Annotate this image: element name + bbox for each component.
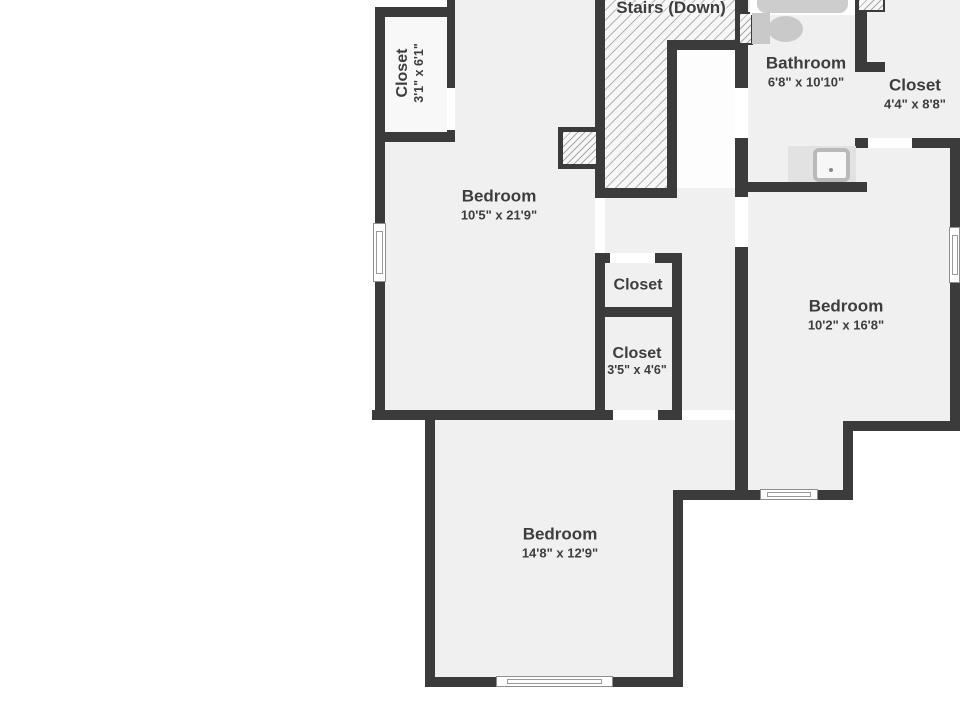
wall	[595, 307, 682, 317]
room-label-bathroom: Bathroom 6'8" x 10'10"	[766, 55, 846, 90]
stairs-landing	[677, 50, 735, 188]
closet-top-left-dims: 3'1" x 6'1"	[413, 43, 426, 103]
door-opening	[447, 88, 455, 130]
room-label-closet-top-left: Closet 3'1" x 6'1"	[394, 43, 426, 103]
hatched-wall-segment	[857, 0, 885, 12]
window	[949, 227, 960, 283]
room-label-closet-top-right: Closet 4'4" x 8'8"	[884, 77, 946, 112]
door-opening	[735, 197, 748, 247]
wall	[735, 182, 867, 192]
wall	[855, 62, 885, 72]
closet-lower-dims: 3'5" x 4'6"	[607, 364, 667, 377]
wall	[375, 7, 385, 420]
bedroom-bottom-name: Bedroom	[522, 526, 598, 544]
closet-top-right-name: Closet	[884, 77, 946, 95]
closet-lower-name: Closet	[607, 345, 667, 362]
bedroom-right-name: Bedroom	[808, 298, 884, 316]
closet-top-left-name: Closet	[394, 43, 411, 103]
wall	[667, 40, 677, 198]
door-opening	[613, 410, 658, 420]
door-opening	[595, 198, 605, 253]
room-label-stairs: Stairs (Down)	[616, 0, 726, 17]
room-label-bedroom-left: Bedroom 10'5" x 21'9"	[461, 188, 537, 223]
room-label-bedroom-bottom: Bedroom 14'8" x 12'9"	[522, 526, 598, 561]
wall	[667, 40, 748, 50]
sink	[813, 148, 850, 182]
bathroom-name: Bathroom	[766, 55, 846, 73]
door-opening	[868, 138, 912, 148]
bedroom-left-dims: 10'5" x 21'9"	[461, 209, 537, 223]
wall	[672, 253, 682, 420]
door-opening	[735, 88, 748, 138]
room-label-bedroom-right: Bedroom 10'2" x 16'8"	[808, 298, 884, 333]
wall	[843, 423, 853, 500]
toilet-bowl	[768, 16, 803, 42]
sink-drain	[829, 168, 833, 172]
window	[760, 489, 818, 500]
door-opening	[610, 253, 655, 263]
hatched-wall-segment	[738, 12, 753, 45]
door-opening	[682, 410, 735, 420]
room-floor-closet-top-right	[855, 0, 960, 148]
bathroom-dims: 6'8" x 10'10"	[766, 76, 846, 90]
wall	[425, 410, 435, 687]
window	[373, 223, 386, 282]
outside-patch	[370, 0, 447, 7]
wall	[673, 490, 683, 687]
window	[496, 676, 613, 687]
wall	[595, 188, 677, 198]
wall	[735, 0, 748, 500]
closet-top-right-dims: 4'4" x 8'8"	[884, 98, 946, 112]
bedroom-left-name: Bedroom	[461, 188, 537, 206]
wall	[375, 132, 455, 142]
wall	[950, 148, 960, 431]
bathtub	[757, 0, 848, 13]
chimney-box	[558, 127, 601, 169]
wall	[843, 421, 960, 431]
room-label-closet-lower: Closet 3'5" x 4'6"	[607, 345, 667, 377]
bedroom-bottom-dims: 14'8" x 12'9"	[522, 547, 598, 561]
wall	[375, 7, 455, 17]
bedroom-right-dims: 10'2" x 16'8"	[808, 319, 884, 333]
closet-middle-name: Closet	[614, 277, 663, 294]
floorplan: Stairs (Down) Closet 3'1" x 6'1" Bedroom…	[0, 0, 960, 720]
room-label-closet-middle: Closet	[614, 277, 663, 294]
stairs-label-text: Stairs (Down)	[616, 0, 726, 17]
